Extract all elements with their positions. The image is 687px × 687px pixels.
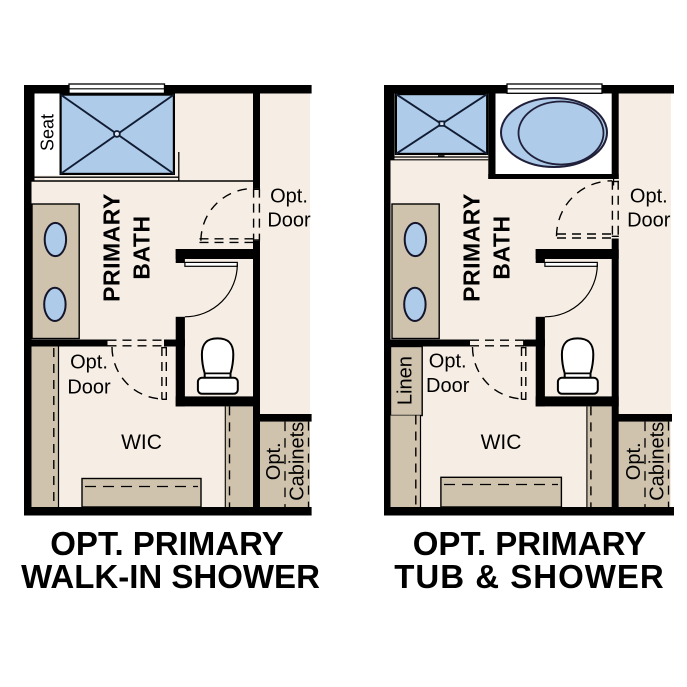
- svg-text:BATH: BATH: [488, 215, 514, 279]
- svg-text:TUB & SHOWER: TUB & SHOWER: [394, 558, 665, 595]
- svg-text:Opt.: Opt.: [630, 186, 668, 208]
- svg-text:Seat: Seat: [37, 114, 57, 151]
- svg-text:BATH: BATH: [128, 215, 154, 279]
- svg-text:PRIMARY: PRIMARY: [99, 193, 125, 302]
- svg-text:Opt.: Opt.: [270, 186, 308, 208]
- svg-text:Door: Door: [267, 210, 311, 232]
- svg-text:Opt.: Opt.: [70, 351, 108, 373]
- svg-text:OPT. PRIMARY: OPT. PRIMARY: [50, 525, 283, 562]
- svg-text:PRIMARY: PRIMARY: [459, 193, 485, 302]
- svg-text:Door: Door: [627, 209, 671, 231]
- svg-text:Door: Door: [67, 376, 111, 398]
- svg-text:WIC: WIC: [481, 431, 522, 454]
- svg-text:Cabinets: Cabinets: [646, 422, 668, 501]
- svg-text:Door: Door: [426, 375, 470, 397]
- svg-text:WIC: WIC: [121, 431, 162, 454]
- svg-text:WALK-IN SHOWER: WALK-IN SHOWER: [21, 558, 320, 595]
- svg-text:Opt.: Opt.: [623, 442, 645, 480]
- svg-text:Linen: Linen: [395, 356, 417, 405]
- svg-text:Opt.: Opt.: [429, 351, 467, 373]
- svg-text:Cabinets: Cabinets: [286, 422, 308, 501]
- svg-text:OPT. PRIMARY: OPT. PRIMARY: [413, 525, 646, 562]
- svg-text:Opt.: Opt.: [263, 442, 285, 480]
